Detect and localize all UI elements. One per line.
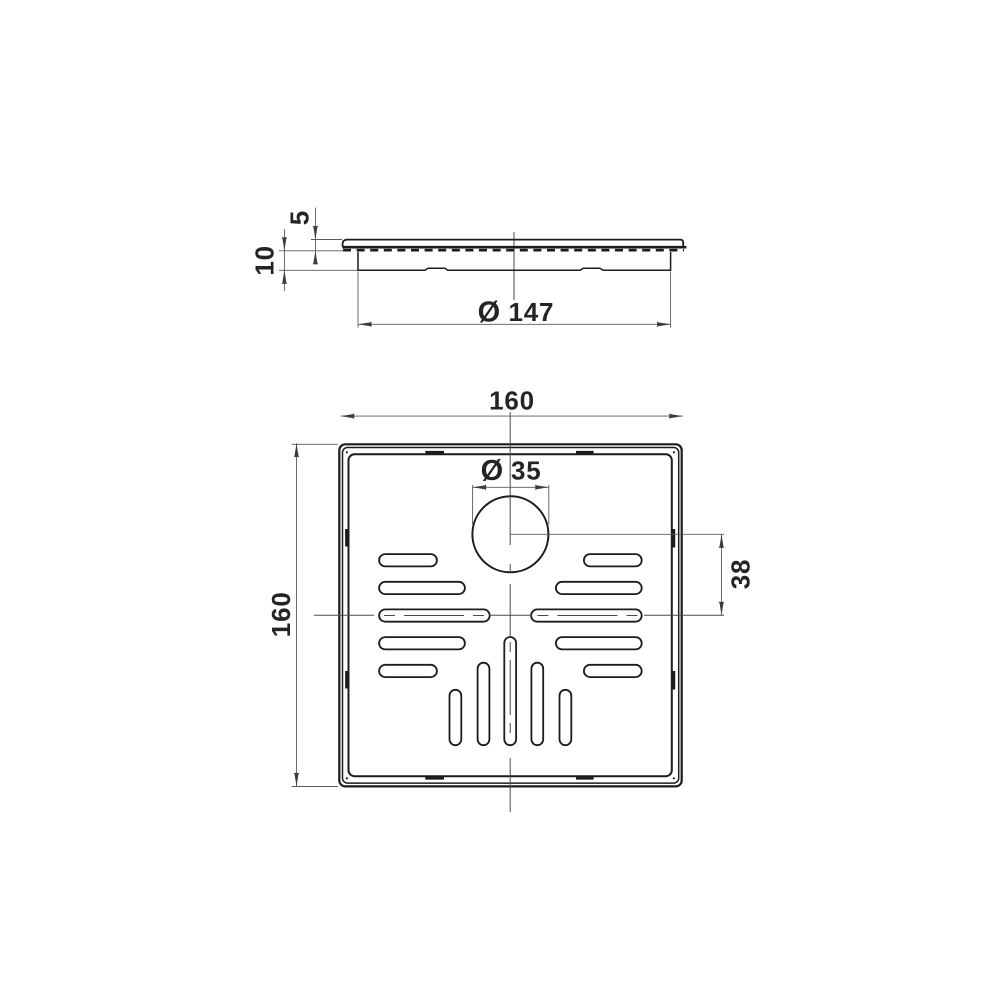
svg-text:147: 147 [509, 297, 555, 327]
svg-text:35: 35 [511, 456, 542, 486]
svg-text:160: 160 [266, 591, 296, 637]
svg-text:5: 5 [285, 210, 315, 225]
svg-text:38: 38 [726, 559, 756, 590]
svg-text:10: 10 [250, 245, 280, 276]
svg-text:160: 160 [489, 385, 535, 415]
svg-text:Ø: Ø [478, 297, 501, 329]
svg-text:Ø: Ø [481, 455, 504, 487]
